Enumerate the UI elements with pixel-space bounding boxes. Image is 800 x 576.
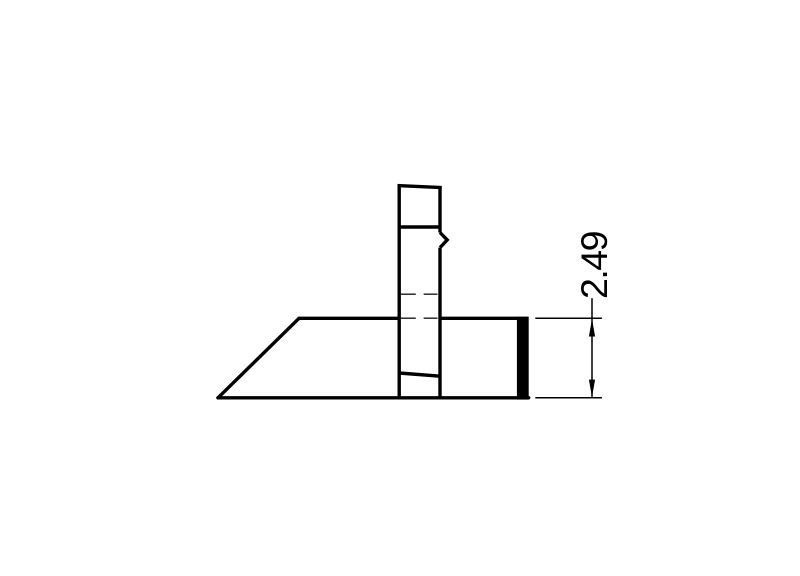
svg-text:2.49: 2.49 (573, 231, 615, 299)
